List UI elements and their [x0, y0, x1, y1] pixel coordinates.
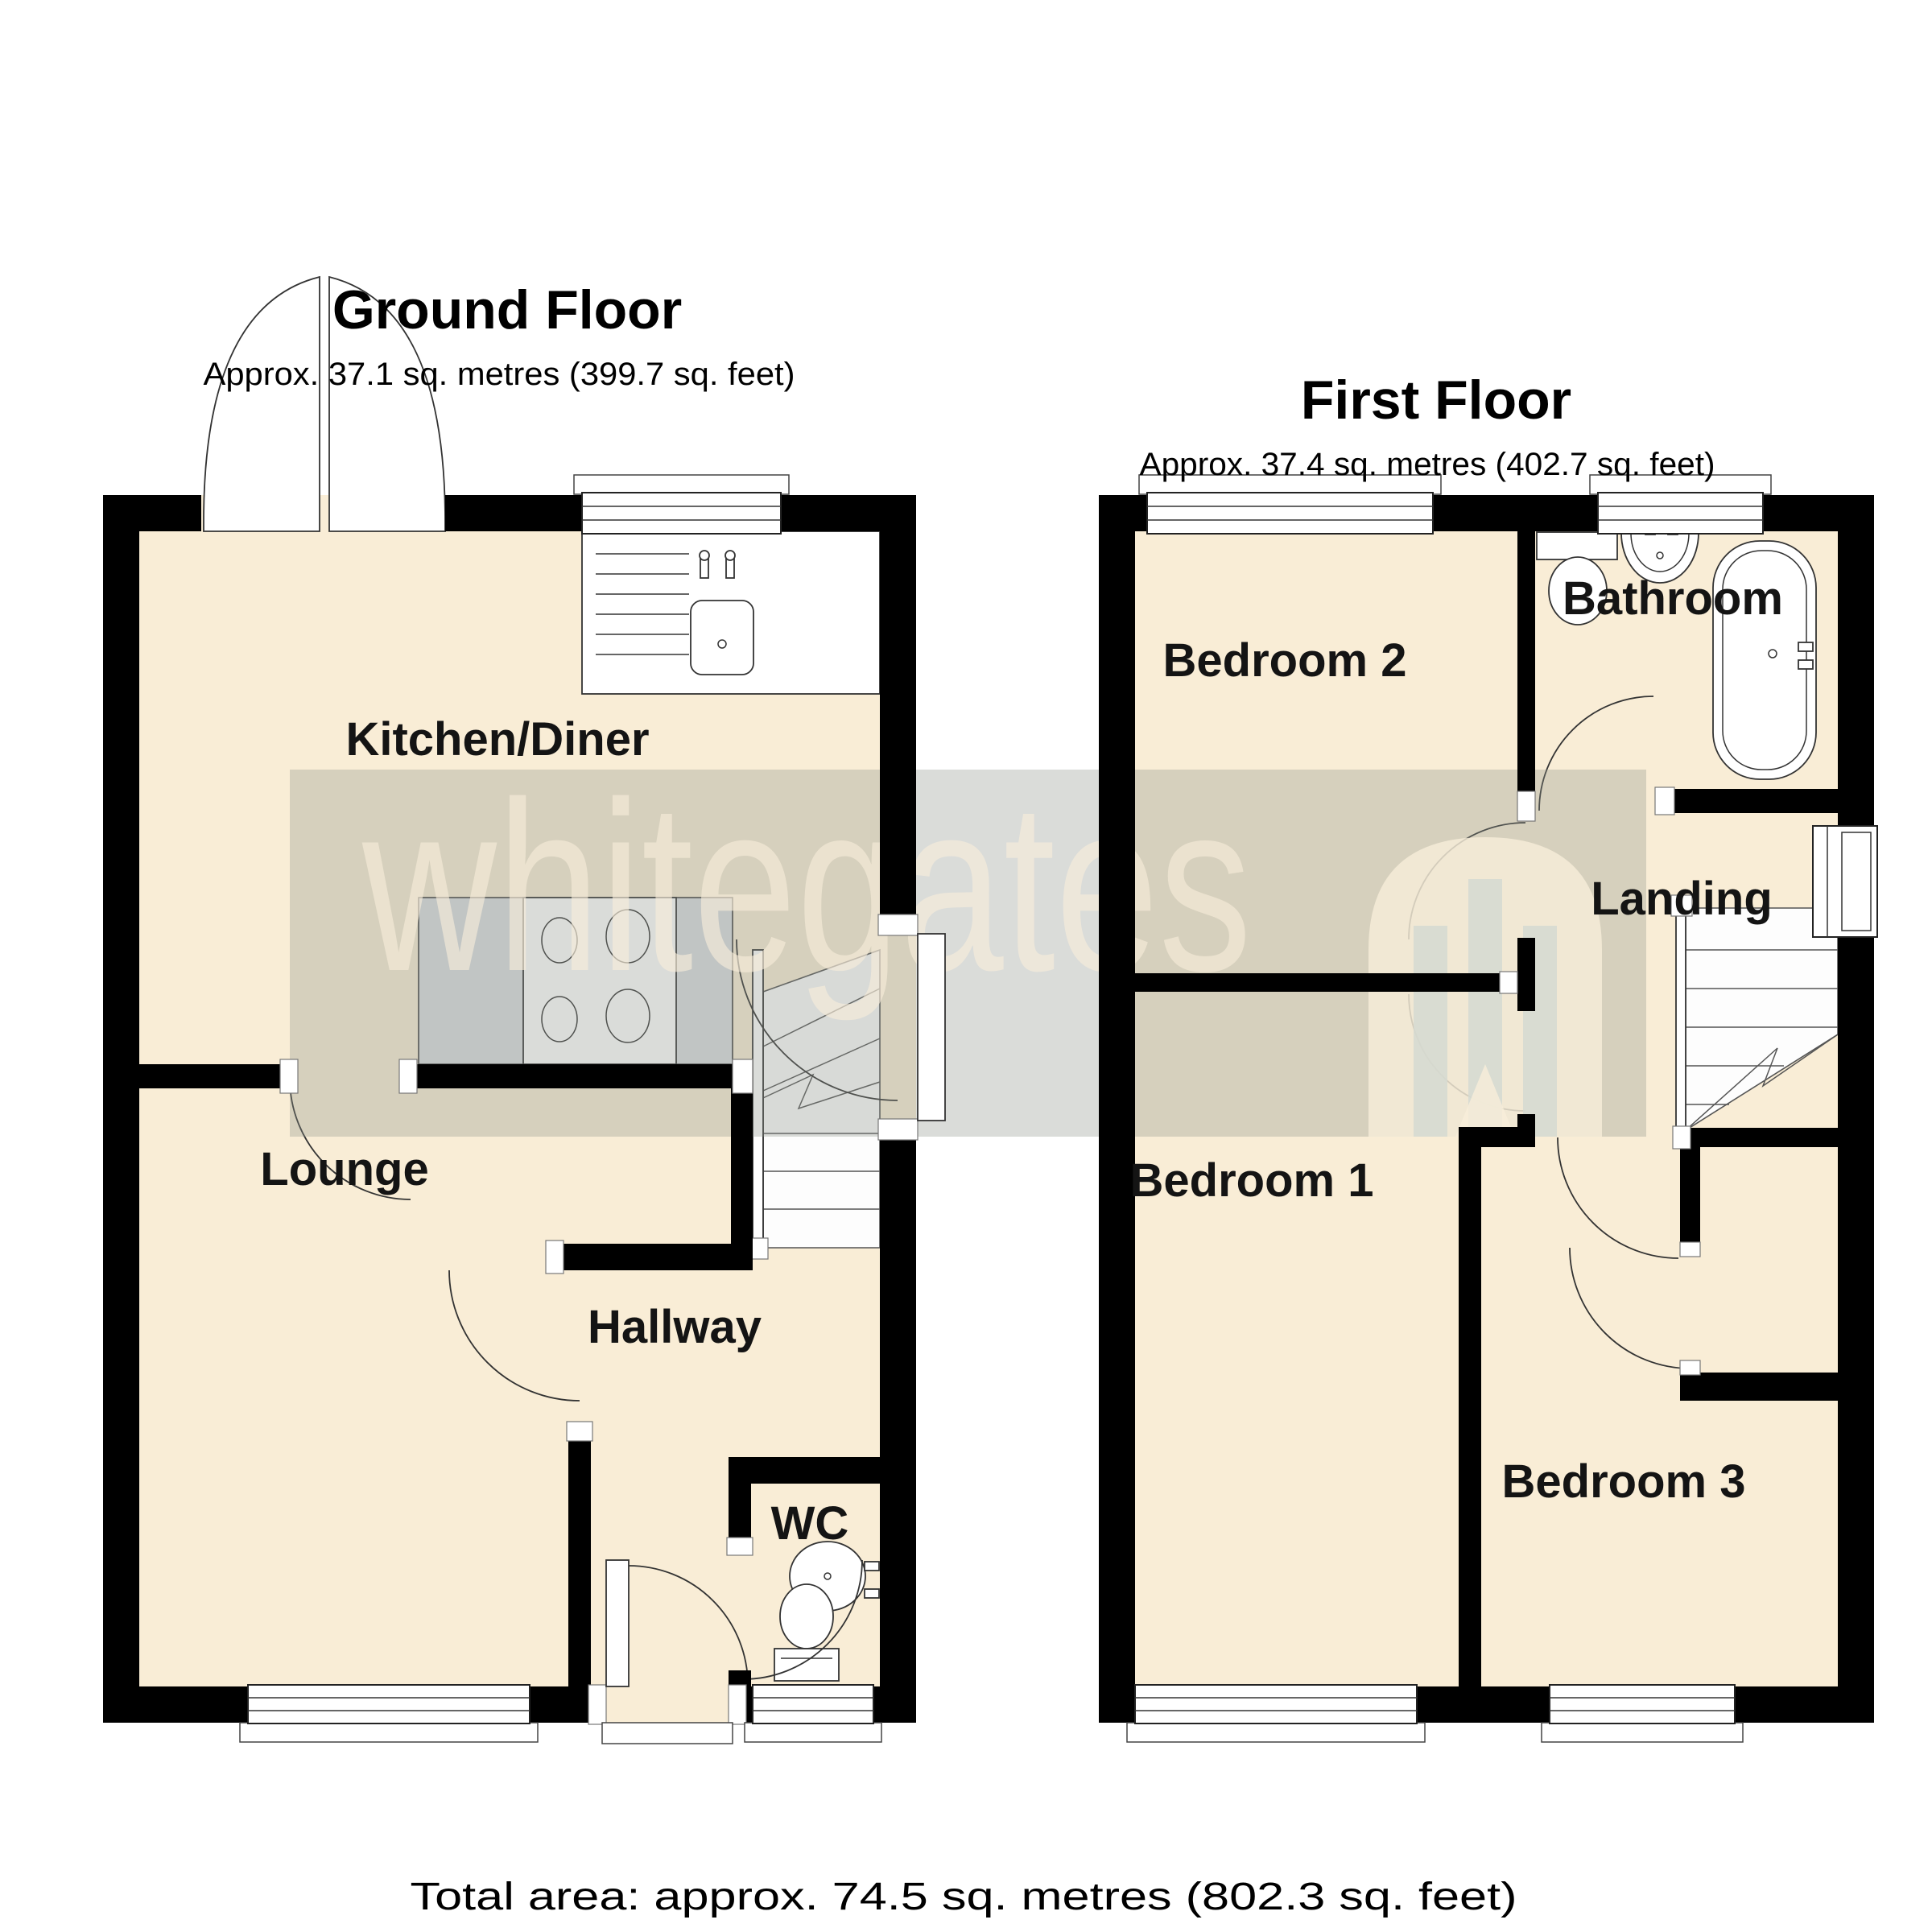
first-floor-area: Approx. 37.4 sq. metres (402.7 sq. feet)	[1140, 447, 1715, 482]
french-door-left-leaf-icon	[204, 277, 320, 531]
ground-floor-area: Approx. 37.1 sq. metres (399.7 sq. feet)	[204, 357, 795, 392]
wc-toilet-icon	[774, 1584, 839, 1681]
total-area-label: Total area: approx. 74.5 sq. metres (802…	[411, 1876, 1517, 1918]
room-label-kitchen-diner: Kitchen/Diner	[345, 713, 649, 766]
room-label-bathroom: Bathroom	[1563, 572, 1783, 625]
back-door-leaf-icon	[918, 934, 945, 1121]
kitchen-sink-unit-icon	[582, 531, 880, 694]
front-door-leaf-icon	[606, 1560, 629, 1686]
floorplan-canvas: whitegates	[0, 0, 1932, 1932]
ground-floor-title: Ground Floor	[332, 279, 682, 341]
room-label-bedroom3: Bedroom 3	[1502, 1455, 1746, 1508]
room-label-hallway: Hallway	[588, 1301, 762, 1353]
front-door-threshold	[602, 1723, 733, 1744]
floorplan-page: whitegates	[0, 0, 1932, 1932]
first-floor-title: First Floor	[1301, 369, 1571, 431]
room-label-wc: WC	[771, 1497, 849, 1550]
room-label-bedroom2: Bedroom 2	[1163, 634, 1407, 687]
room-label-lounge: Lounge	[260, 1143, 428, 1195]
room-label-bedroom1: Bedroom 1	[1130, 1154, 1374, 1207]
room-label-landing: Landing	[1591, 873, 1773, 925]
